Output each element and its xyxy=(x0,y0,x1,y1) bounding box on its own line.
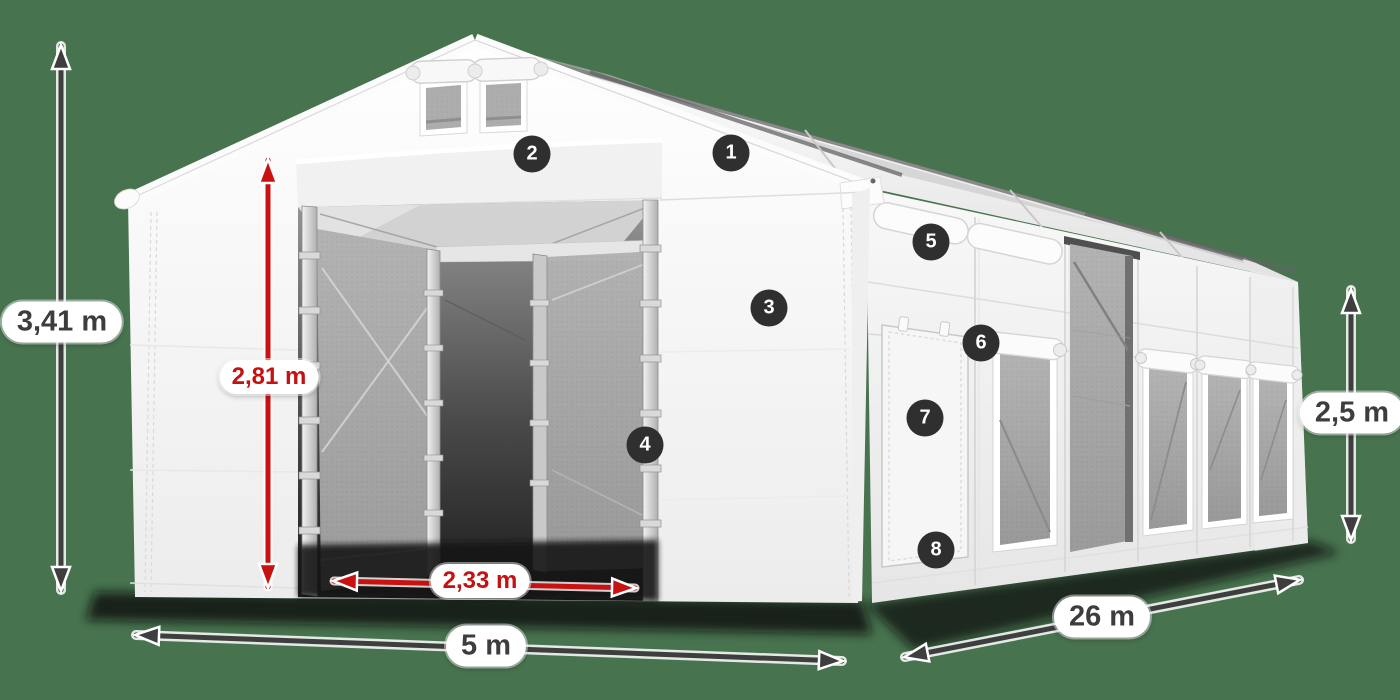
tent-dimension-diagram: 3,41 m 2,81 m 2,33 m 5 m 26 m 2,5 m 1 2 … xyxy=(0,0,1400,700)
feature-badge-5: 5 xyxy=(913,224,950,261)
feature-badge-4: 4 xyxy=(627,427,664,464)
feature-badge-8: 8 xyxy=(918,532,955,569)
dimension-label-length: 26 m xyxy=(1054,597,1150,638)
dimension-label-width: 5 m xyxy=(446,626,526,667)
tent-illustration xyxy=(0,0,1400,700)
feature-badge-3: 3 xyxy=(751,290,788,327)
feature-badge-1: 1 xyxy=(713,135,750,172)
feature-badge-6: 6 xyxy=(963,325,1000,362)
side-window-3 xyxy=(1195,355,1256,529)
front-entrance-interior xyxy=(298,200,661,601)
feature-badge-2: 2 xyxy=(514,136,551,173)
feature-badge-7: 7 xyxy=(907,400,944,437)
open-side-doorway xyxy=(1064,236,1140,552)
side-window-2 xyxy=(1136,348,1202,536)
dimension-label-total-height: 3,41 m xyxy=(2,302,122,343)
dimension-label-side-height: 2,5 m xyxy=(1300,393,1400,434)
inner-mesh-curtain-left xyxy=(317,229,436,591)
dimension-label-inner-height: 2,81 m xyxy=(220,360,319,394)
dimension-label-door-width: 2,33 m xyxy=(431,564,530,598)
side-door-panel xyxy=(882,317,968,567)
side-window-1 xyxy=(985,331,1067,552)
